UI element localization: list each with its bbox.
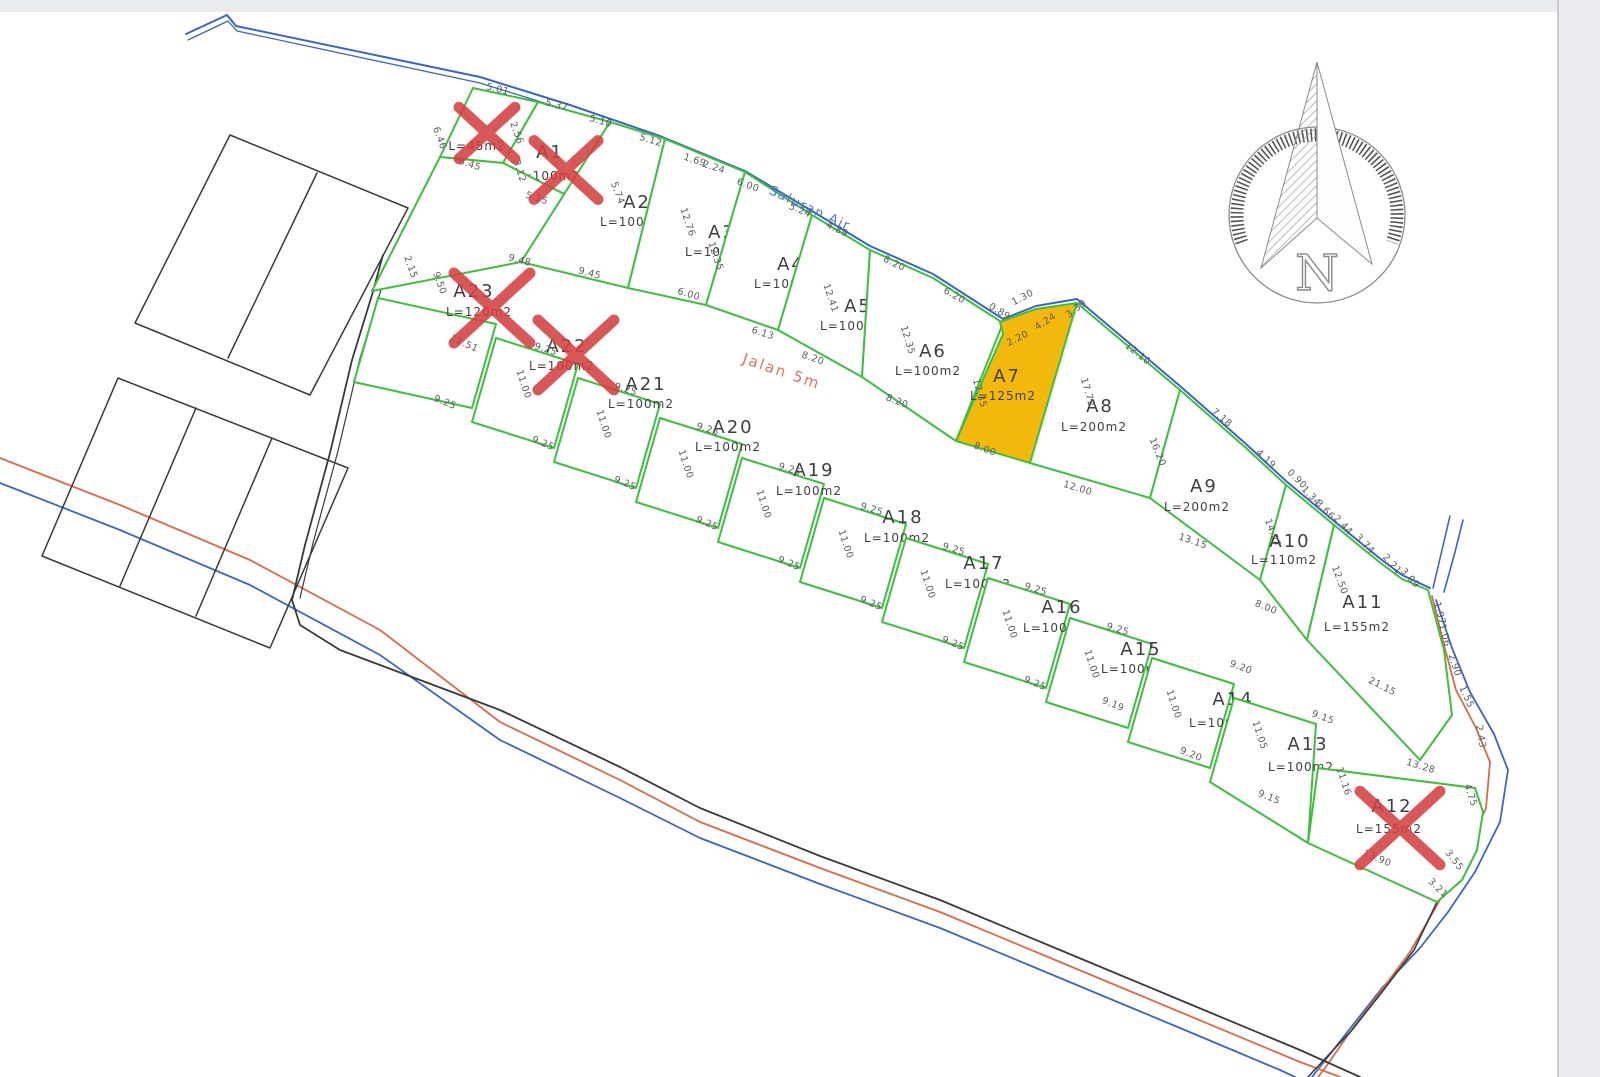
compass-north-letter: N [1295, 244, 1339, 302]
plot-area-A19: L=100m2 [776, 484, 842, 498]
plot-label-A7: A7 [993, 366, 1021, 387]
plot-area-A21: L=100m2 [608, 397, 674, 411]
site-plan-page: L=45m2A1L=100m2A2L=100m2A3L=100m2A4L=100… [0, 0, 1600, 1077]
plot-area-A6: L=100m2 [895, 364, 961, 378]
plot-label-A13: A13 [1287, 734, 1328, 755]
land-plot-map: L=45m2A1L=100m2A2L=100m2A3L=100m2A4L=100… [0, 0, 1600, 1077]
plot-label-A11: A11 [1342, 592, 1383, 613]
plot-area-A11: L=155m2 [1324, 620, 1390, 634]
plot-label-A9: A9 [1190, 476, 1218, 497]
plot-label-A18: A18 [882, 507, 923, 528]
plot-area-A10: L=110m2 [1251, 553, 1317, 567]
plot-label-A15: A15 [1120, 639, 1161, 660]
plot-area-A20: L=100m2 [695, 440, 761, 454]
plot-label-A16: A16 [1041, 597, 1082, 618]
plot-label-A6: A6 [919, 341, 947, 362]
plot-label-A17: A17 [963, 553, 1004, 574]
plot-area-A9: L=200m2 [1164, 500, 1230, 514]
plot-area-A8: L=200m2 [1061, 420, 1127, 434]
